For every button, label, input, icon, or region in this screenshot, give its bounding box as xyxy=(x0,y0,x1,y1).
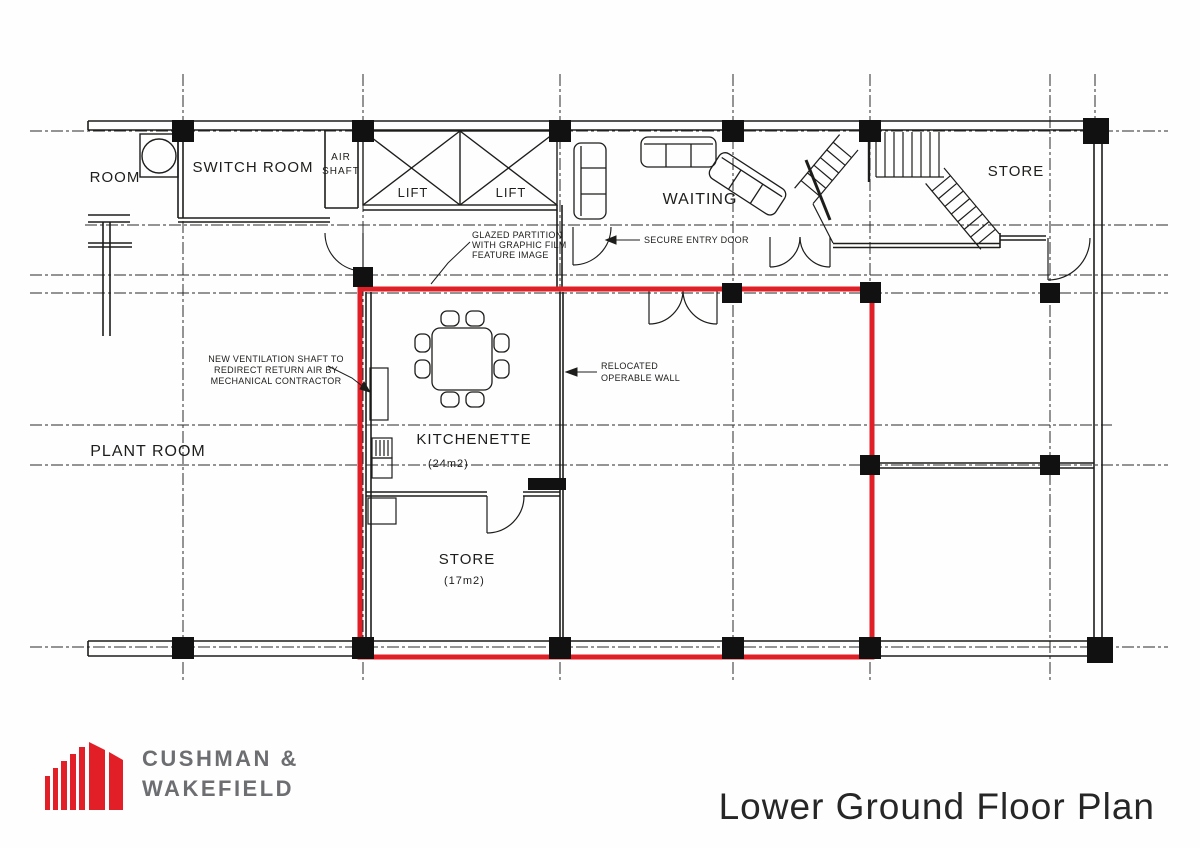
annotation-glazed-3: FEATURE IMAGE xyxy=(472,250,549,260)
red-highlight-boundary xyxy=(360,289,872,657)
chairs xyxy=(415,311,509,407)
annotation-vent-3: MECHANICAL CONTRACTOR xyxy=(211,376,342,386)
meeting-table-set xyxy=(415,311,509,407)
logo-wordmark: CUSHMAN & WAKEFIELD xyxy=(142,744,299,805)
kitchenette-fittings xyxy=(368,368,396,524)
floor-plan-sheet: ROOM SWITCH ROOM AIR SHAFT LIFT LIFT WAI… xyxy=(0,0,1200,848)
label-air-shaft-1: AIR xyxy=(331,152,351,163)
label-room: ROOM xyxy=(90,169,141,186)
annotation-glazed-1: GLAZED PARTITION xyxy=(472,230,562,240)
sheet-footer: CUSHMAN & WAKEFIELD Lower Ground Floor P… xyxy=(0,730,1200,848)
label-switch-room: SWITCH ROOM xyxy=(193,159,314,176)
plan-title: Lower Ground Floor Plan xyxy=(719,786,1155,828)
label-store-lower-area: (17m2) xyxy=(444,575,485,587)
walls xyxy=(88,121,1102,656)
logo-line-1: CUSHMAN & xyxy=(142,744,299,774)
solid-wall-segment xyxy=(528,478,566,490)
label-kitchenette: KITCHENETTE xyxy=(416,431,531,448)
logo-line-2: WAKEFIELD xyxy=(142,774,299,804)
ventilation-shaft xyxy=(370,368,388,420)
store-cabinet xyxy=(368,498,396,524)
label-store-lower: STORE xyxy=(439,551,495,568)
annotation-operable-1: RELOCATED xyxy=(601,361,658,371)
label-lift-right: LIFT xyxy=(496,185,527,200)
cushman-wakefield-logo-icon xyxy=(45,738,127,810)
annotation-glazed-2: WITH GRAPHIC FILM xyxy=(472,240,567,250)
bench-vertical xyxy=(574,143,606,219)
annotations: GLAZED PARTITION WITH GRAPHIC FILM FEATU… xyxy=(208,230,749,386)
secure-entry-door-arc xyxy=(573,227,611,265)
bench-horizontal xyxy=(641,137,716,167)
label-plant-room: PLANT ROOM xyxy=(90,443,206,460)
floor-plan-drawing: ROOM SWITCH ROOM AIR SHAFT LIFT LIFT WAI… xyxy=(0,0,1200,730)
table xyxy=(432,328,492,390)
cushman-wakefield-logo: CUSHMAN & WAKEFIELD xyxy=(45,738,299,810)
label-store-upper: STORE xyxy=(988,163,1044,180)
annotation-secure-entry: SECURE ENTRY DOOR xyxy=(644,235,749,245)
staircase xyxy=(795,131,1000,249)
annotation-operable-2: OPERABLE WALL xyxy=(601,373,680,383)
lift-shafts xyxy=(363,131,557,210)
columns xyxy=(172,118,1113,663)
label-lift-left: LIFT xyxy=(398,185,429,200)
annotation-vent-2: REDIRECT RETURN AIR BY xyxy=(214,365,338,375)
label-kitchenette-area: (24m2) xyxy=(428,458,469,470)
label-waiting: WAITING xyxy=(663,191,738,208)
label-air-shaft-2: SHAFT xyxy=(322,166,360,177)
appliance xyxy=(372,438,392,478)
annotation-vent-1: NEW VENTILATION SHAFT TO xyxy=(208,354,344,364)
